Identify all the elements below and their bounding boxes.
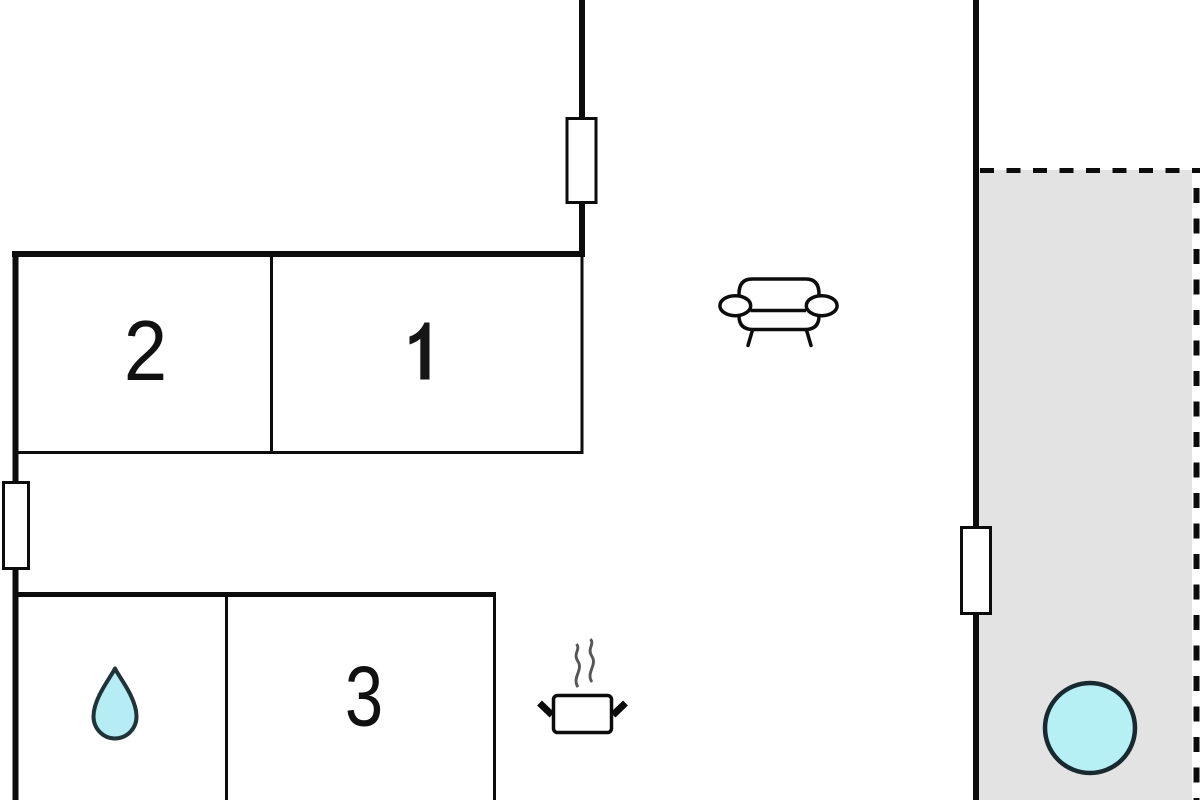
- svg-text:2: 2: [124, 304, 167, 399]
- svg-text:3: 3: [345, 650, 383, 745]
